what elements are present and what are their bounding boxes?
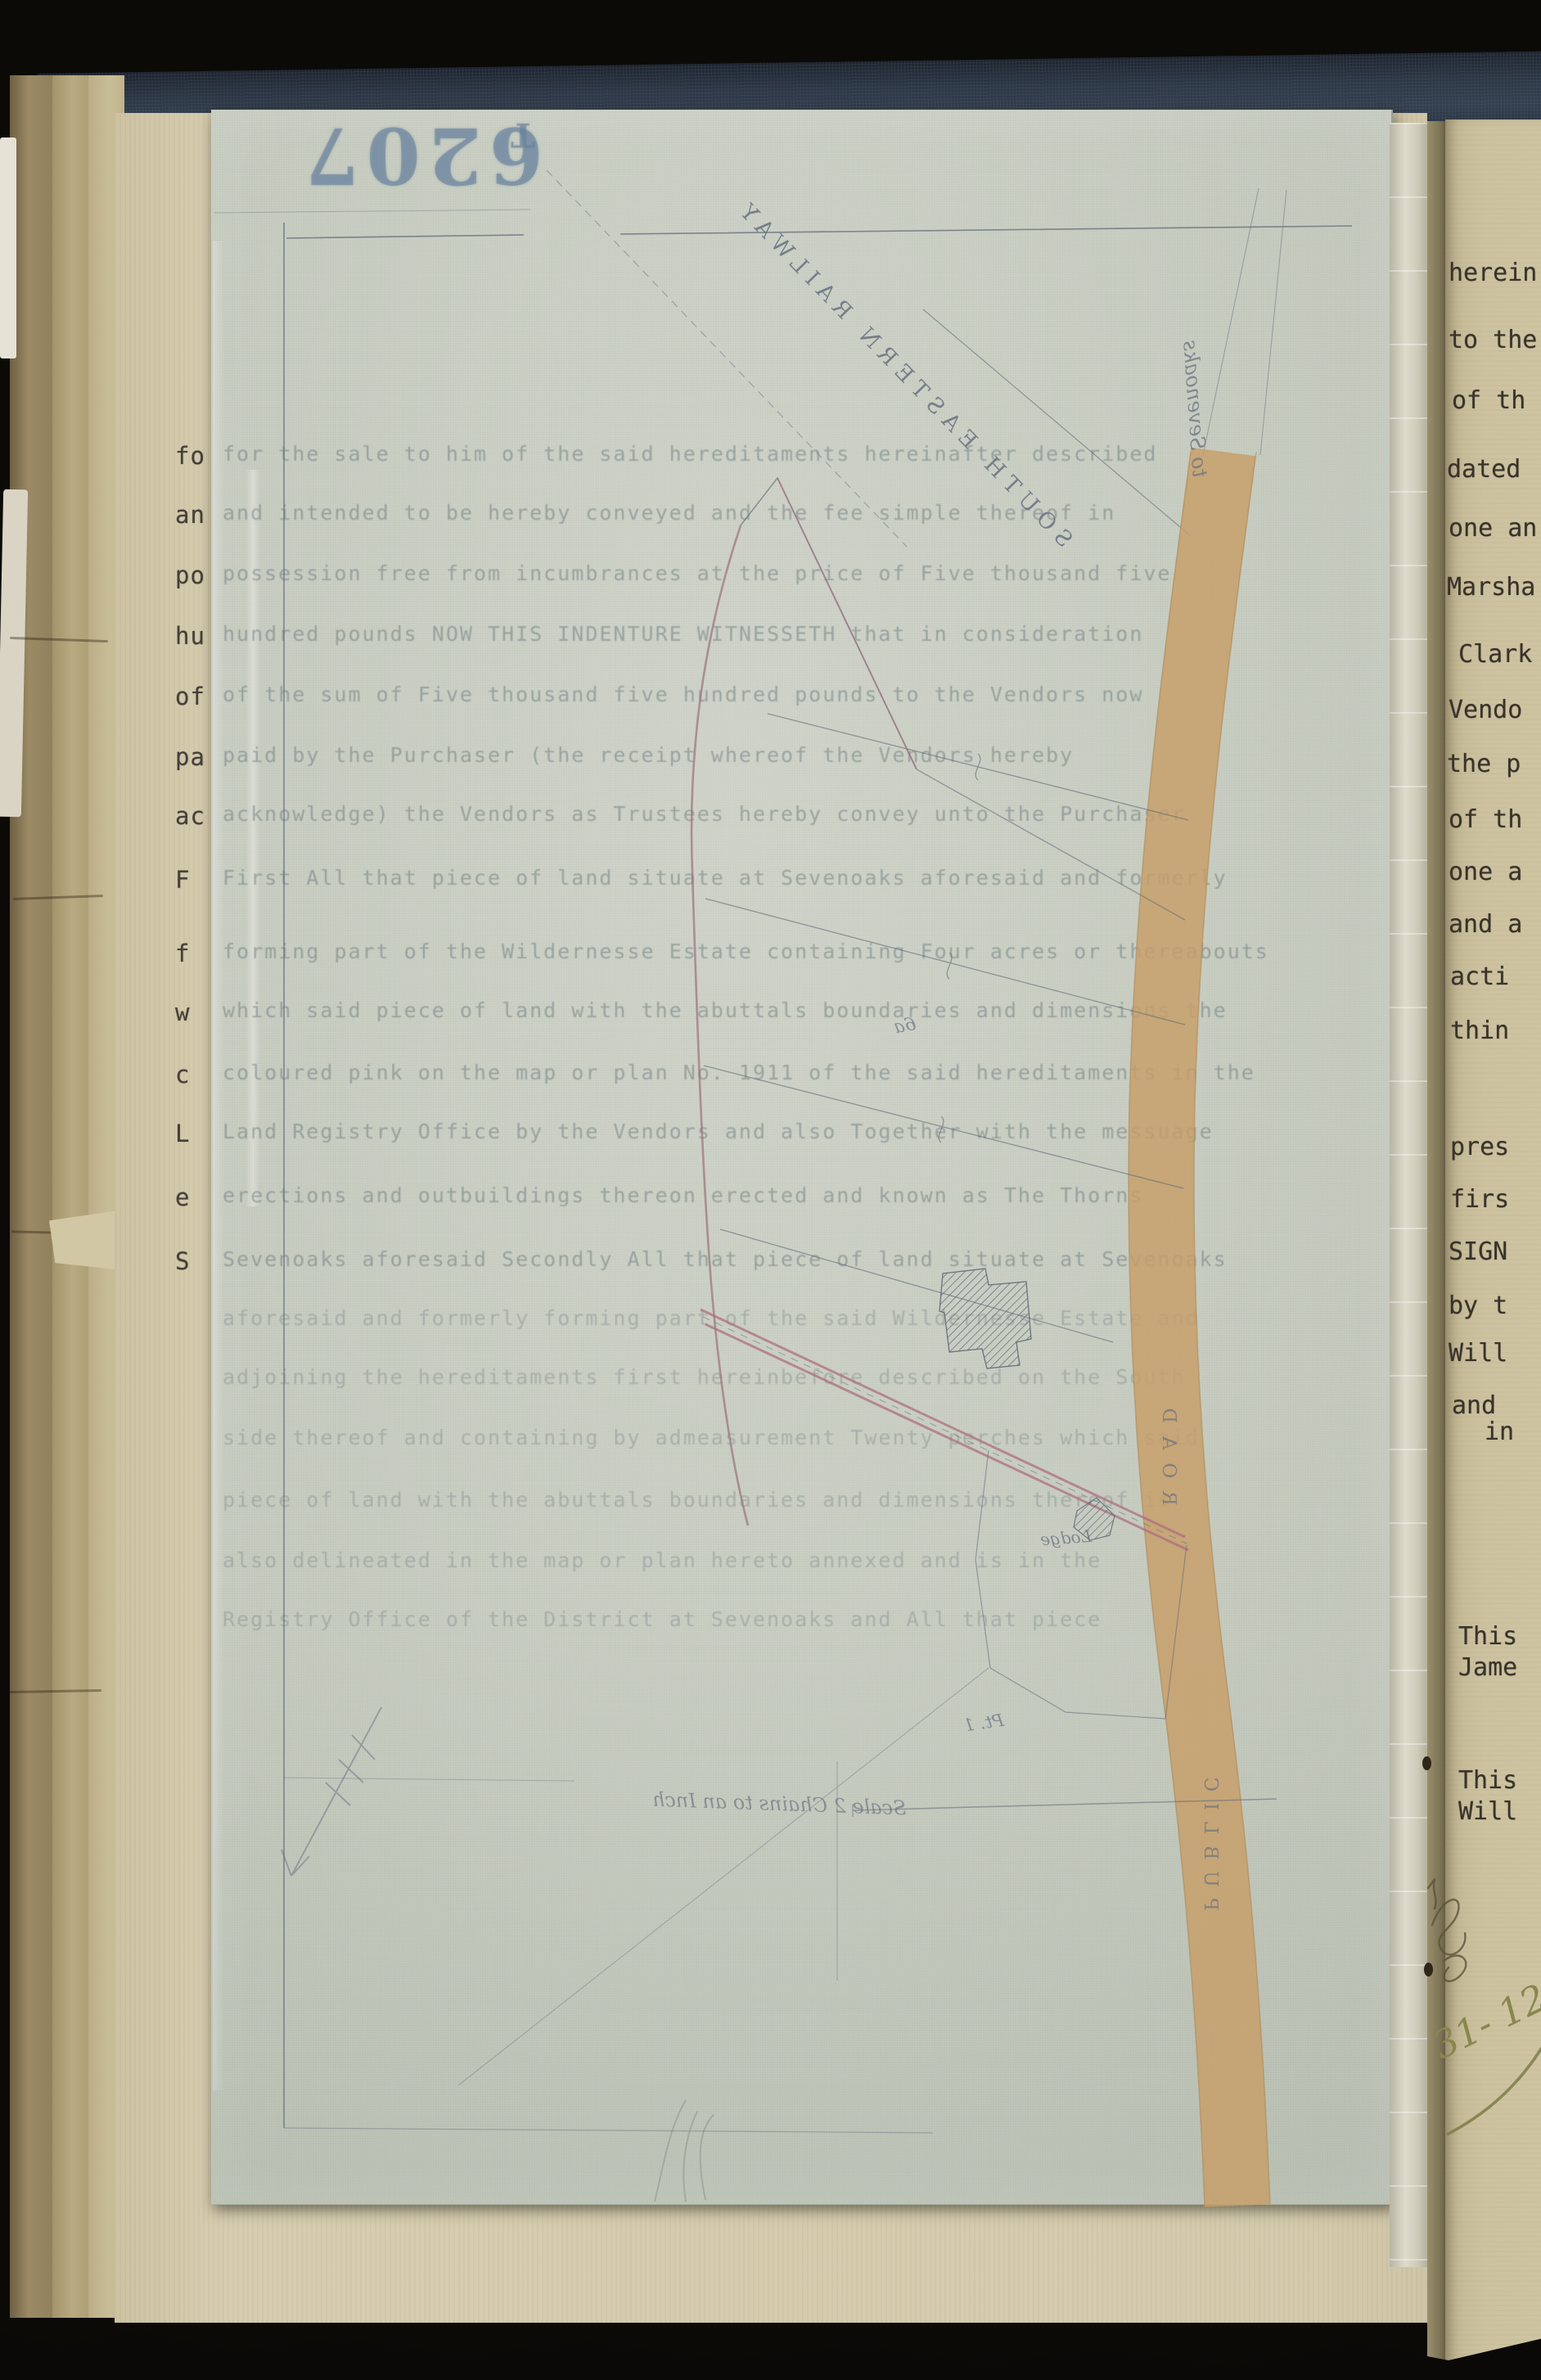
typed-line-margin-letters: L xyxy=(175,1120,190,1147)
typed-line-margin-letters: F xyxy=(175,866,190,894)
ghost-typed-line: coloured pink on the map or plan No. 191… xyxy=(223,1061,1377,1084)
next-page-text-fragment: firs xyxy=(1450,1185,1509,1214)
next-page-text-fragment: This xyxy=(1458,1766,1517,1795)
next-page-text-fragment: Will xyxy=(1458,1797,1517,1826)
ghost-typed-line: piece of land with the abuttals boundari… xyxy=(223,1488,1377,1512)
next-page-text-fragment: dated xyxy=(1447,455,1521,484)
ghost-typed-line: aforesaid and formerly forming part of t… xyxy=(223,1306,1377,1330)
typed-line-margin-letters: fo xyxy=(175,442,205,470)
page-edge-strip xyxy=(52,75,93,2318)
ghost-lines: for the sale to him of the said heredita… xyxy=(211,110,1391,2204)
typed-line-margin-letters: an xyxy=(175,501,205,529)
paper-edge-sliver xyxy=(0,137,16,358)
typed-line-margin-letters: c xyxy=(175,1061,190,1089)
ghost-typed-line: and intended to be hereby conveyed and t… xyxy=(223,501,1377,525)
ghost-typed-line: side thereof and containing by admeasure… xyxy=(223,1426,1377,1449)
ghost-typed-line: of the sum of Five thousand five hundred… xyxy=(223,683,1377,706)
next-page-text-fragment: This xyxy=(1458,1622,1517,1651)
typed-line-margin-letters: f xyxy=(175,940,190,967)
next-page-text-fragment: SIGN xyxy=(1449,1237,1507,1266)
typed-line-margin-letters: hu xyxy=(175,622,205,650)
ghost-typed-line: which said piece of land with the abutta… xyxy=(223,998,1377,1022)
page-edge-strip xyxy=(10,75,57,2318)
next-page-text-fragment: Vendo xyxy=(1449,696,1522,724)
next-page-text-fragment: thin xyxy=(1450,1016,1509,1045)
ghost-typed-line: Registry Office of the District at Seven… xyxy=(223,1607,1377,1631)
tracing-paper-plan: for the sale to him of the said heredita… xyxy=(211,110,1393,2205)
binding-hole xyxy=(1424,1963,1433,1977)
binding-hole xyxy=(1422,1756,1431,1770)
next-page-text-fragment: Will xyxy=(1449,1339,1507,1368)
next-page-text-fragment: herein xyxy=(1449,259,1537,287)
next-page-text-fragment: one an xyxy=(1449,514,1537,543)
ghost-typed-line: also delineated in the map or plan heret… xyxy=(223,1548,1377,1572)
next-page-text-fragment: of th xyxy=(1449,805,1522,834)
next-page-text-fragment: of th xyxy=(1452,386,1525,415)
next-page-text-fragment: to the xyxy=(1449,326,1537,354)
next-page-text-fragment: Clark xyxy=(1458,640,1532,669)
typed-line-margin-letters: po xyxy=(175,561,205,589)
ghost-typed-line: hundred pounds NOW THIS INDENTURE WITNES… xyxy=(223,622,1377,646)
typed-line-margin-letters: e xyxy=(175,1183,190,1211)
next-page-text-fragment: acti xyxy=(1450,962,1509,991)
ghost-typed-line: paid by the Purchaser (the receipt where… xyxy=(223,743,1377,767)
typed-line-margin-letters: ac xyxy=(175,802,205,830)
next-page-text-fragment: in xyxy=(1485,1418,1514,1446)
next-page-text-fragment: by t xyxy=(1449,1291,1507,1320)
next-page-text-fragment: pres xyxy=(1450,1133,1509,1161)
document-number-stamp: 6207 T xyxy=(282,116,543,216)
next-page-text-fragment: the p xyxy=(1447,750,1521,778)
typed-line-margin-letters: pa xyxy=(175,743,205,771)
ghost-typed-line: adjoining the hereditaments first herein… xyxy=(223,1365,1377,1389)
ghost-typed-line: erections and outbuildings thereon erect… xyxy=(223,1183,1377,1207)
ghost-typed-line: forming part of the Wildernesse Estate c… xyxy=(223,940,1377,963)
typed-line-margin-letters: w xyxy=(175,998,190,1026)
archive-photo-of-bound-deed-volume: foanpohuofpaacFfwcLeS for the sale to hi… xyxy=(0,0,1541,2380)
next-page-text-fragment: Jame xyxy=(1458,1653,1517,1682)
stamp-number: 6207 xyxy=(298,116,543,194)
ghost-typed-line: possession free from incumbrances at the… xyxy=(223,561,1377,585)
next-page-text-fragment: Marsha xyxy=(1447,573,1535,602)
next-page-text-fragment: and xyxy=(1452,1391,1496,1420)
ghost-typed-line: Land Registry Office by the Vendors and … xyxy=(223,1120,1377,1143)
ghost-typed-line: First All that piece of land situate at … xyxy=(223,866,1377,890)
typed-line-margin-letters: S xyxy=(175,1247,190,1275)
typed-line-margin-letters: of xyxy=(175,683,205,710)
next-tracing-sheet-edge xyxy=(1390,123,1429,2267)
stamp-mark: T xyxy=(511,118,535,151)
next-page-text-fragment: one a xyxy=(1449,858,1522,886)
ghost-typed-line: acknowledge) the Vendors as Trustees her… xyxy=(223,802,1377,826)
ghost-typed-line: Sevenoaks aforesaid Secondly All that pi… xyxy=(223,1247,1377,1271)
next-page-text-fragment: and a xyxy=(1449,910,1522,939)
ghost-typed-line: for the sale to him of the said heredita… xyxy=(223,442,1377,466)
